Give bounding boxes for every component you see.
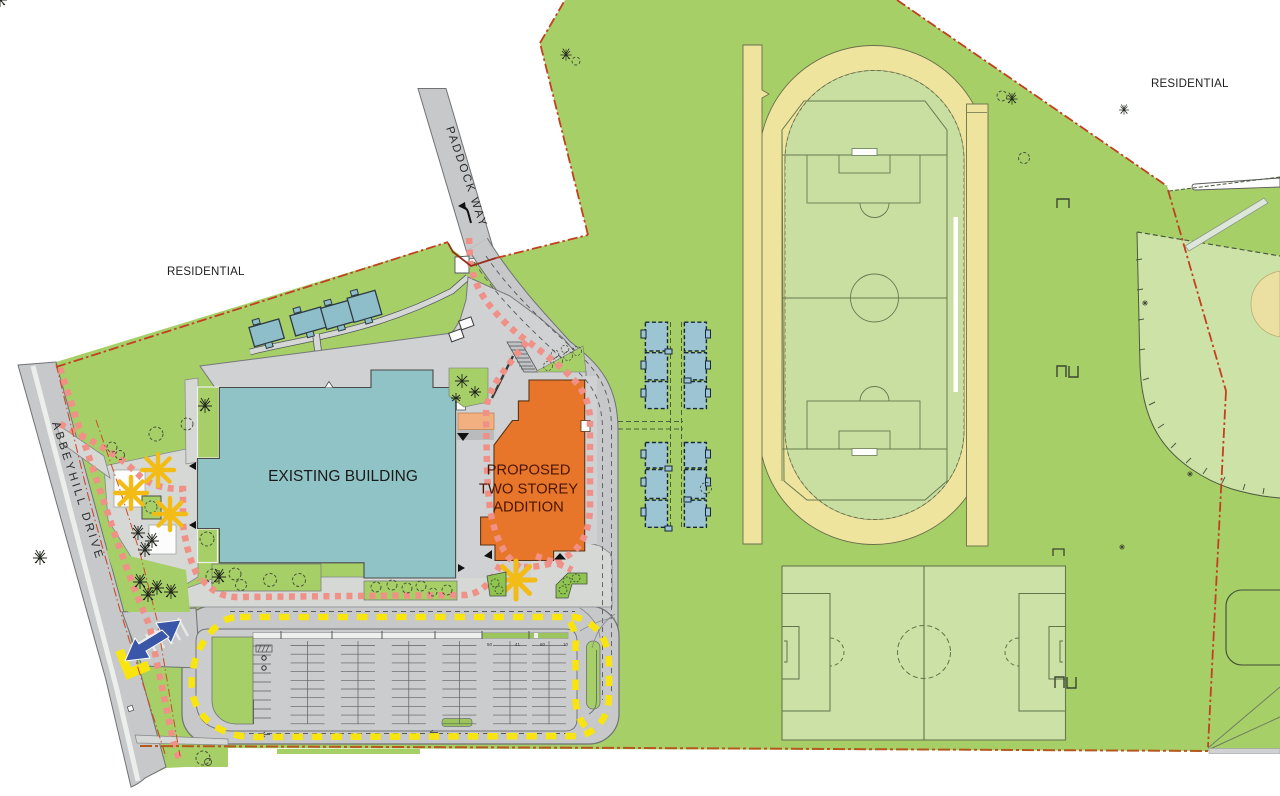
svg-text:50: 50 [487,642,493,647]
svg-text:41: 41 [515,642,521,647]
svg-text:TWO STOREY: TWO STOREY [479,482,578,498]
svg-text:60: 60 [540,642,546,647]
svg-text:PROPOSED: PROPOSED [487,463,571,479]
svg-text:ADDITION: ADDITION [493,500,564,516]
svg-text:10: 10 [563,642,569,647]
svg-text:RESIDENTIAL: RESIDENTIAL [167,266,245,278]
svg-text:EXISTING BUILDING: EXISTING BUILDING [268,468,418,485]
svg-text:RESIDENTIAL: RESIDENTIAL [1151,78,1229,90]
